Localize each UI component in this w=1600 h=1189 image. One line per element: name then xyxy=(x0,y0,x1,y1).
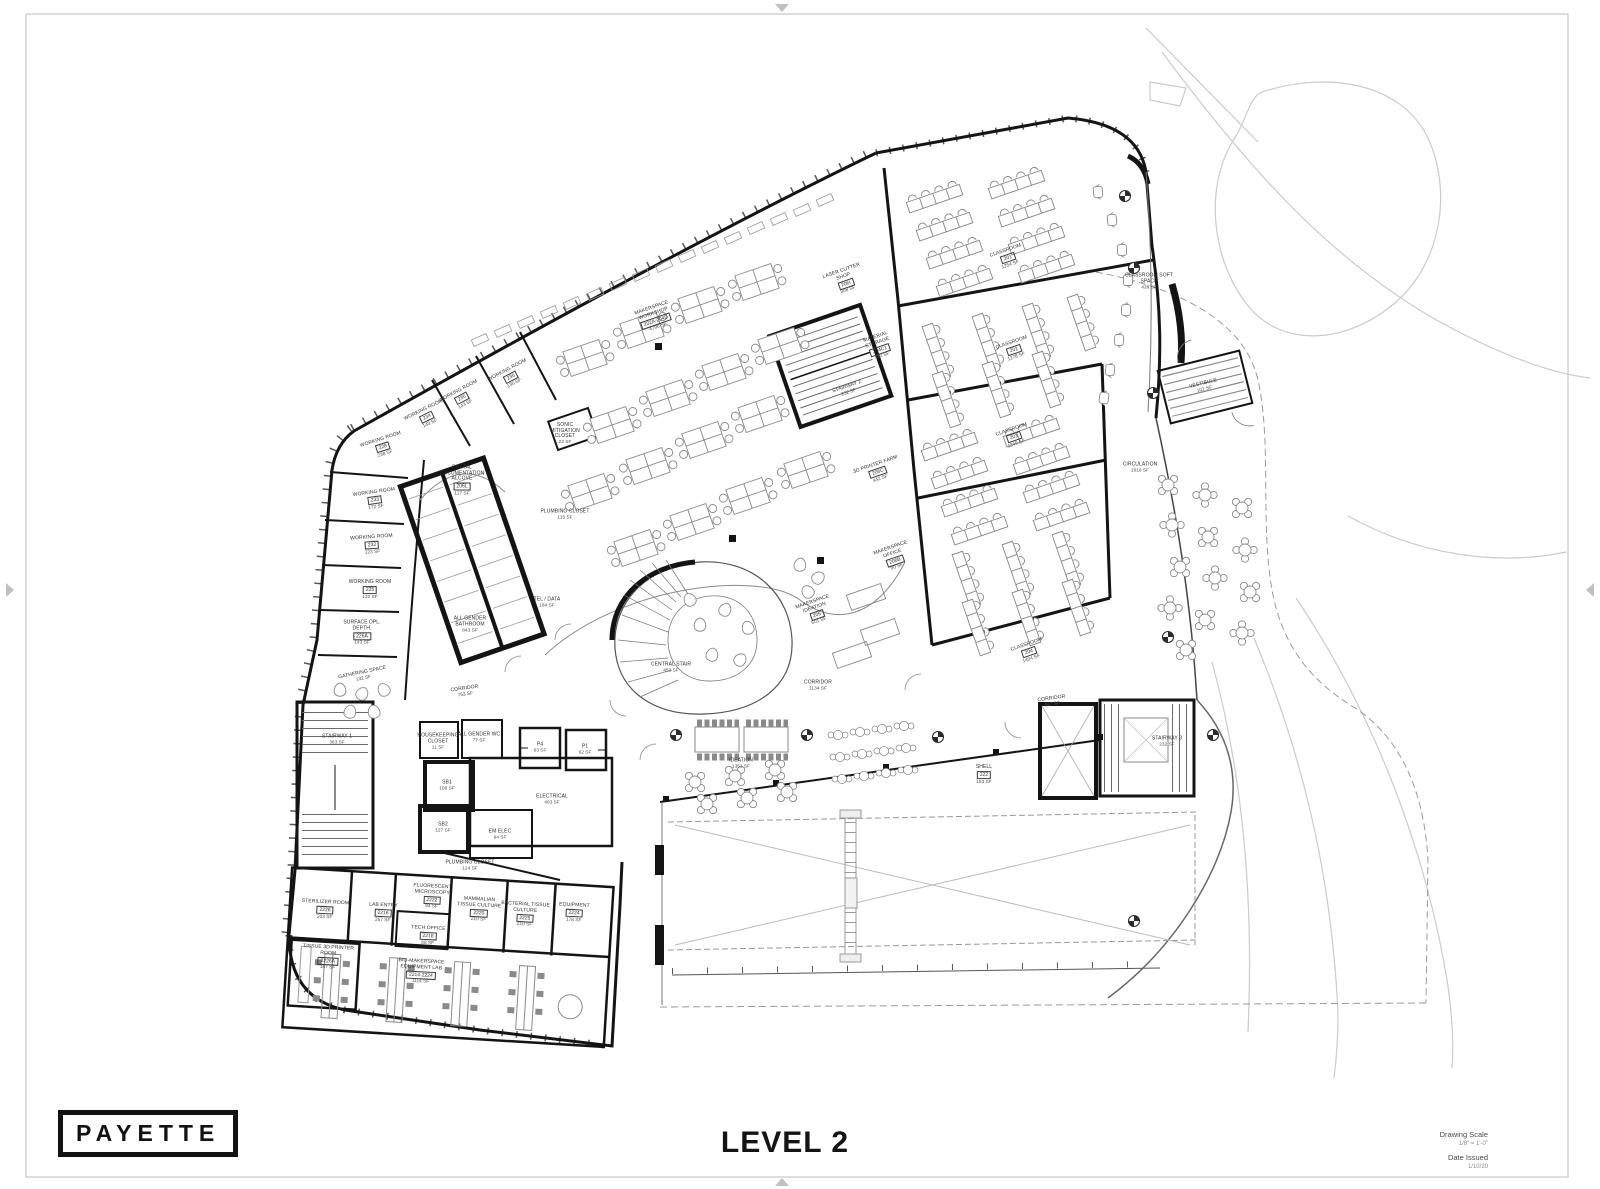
central-stair xyxy=(612,560,792,714)
stairway-2 xyxy=(769,305,891,427)
date-issued-value: 1/10/20 xyxy=(1440,1163,1488,1171)
drawing-scale-label: Drawing Scale xyxy=(1440,1130,1488,1140)
lab-wing xyxy=(282,868,613,1047)
column-markers xyxy=(655,191,1219,927)
vestibule xyxy=(1152,329,1257,444)
door-swings xyxy=(505,624,1021,760)
site-context-lines xyxy=(1146,28,1590,1078)
classroom-tables xyxy=(905,165,1101,655)
property-line xyxy=(1096,272,1428,1003)
date-issued-label: Date Issued xyxy=(1440,1153,1488,1163)
ideation-furniture xyxy=(678,721,918,821)
page-title: LEVEL 2 xyxy=(140,1126,1430,1160)
soft-space-seating xyxy=(1093,184,1133,406)
drawing-sheet: MAKERSPACEWORKSHOP202A-204D4796 SFLASER … xyxy=(0,0,1600,1189)
sheet-border xyxy=(26,14,1568,1177)
service-core xyxy=(420,720,612,880)
stairway-3 xyxy=(1040,700,1194,798)
gathering-space-seating xyxy=(334,681,392,719)
terrace xyxy=(655,700,1233,1005)
stairway-1 xyxy=(297,702,373,868)
exterior-walls xyxy=(285,118,1197,1046)
ideation-205-tables xyxy=(832,584,899,669)
title-block: Drawing Scale 1/8" = 1'-0" Date Issued 1… xyxy=(1440,1130,1488,1171)
edge-marker-icons xyxy=(6,4,1594,1186)
drawing-scale-value: 1/8" = 1'-0" xyxy=(1440,1140,1488,1148)
terrace-dashed-edge xyxy=(660,1003,1426,1007)
floor-plan xyxy=(0,0,1600,1189)
